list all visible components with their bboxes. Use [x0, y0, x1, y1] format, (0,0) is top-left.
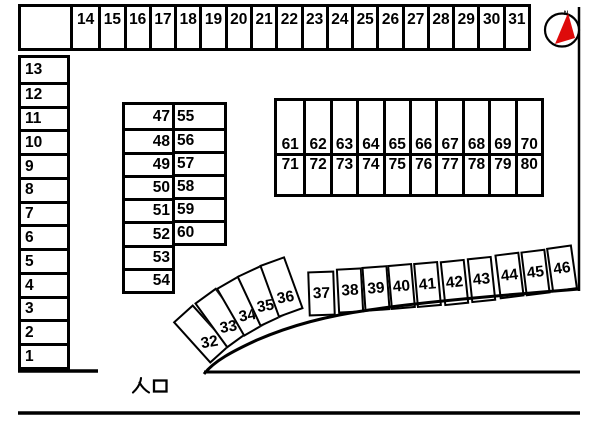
- space-number: 9: [25, 159, 34, 175]
- space-number: 80: [521, 157, 538, 173]
- space-number: 8: [25, 182, 34, 198]
- parking-space-72: 72: [303, 153, 329, 194]
- space-number: 73: [336, 157, 353, 173]
- parking-space-61: 61: [277, 101, 303, 153]
- parking-space-4: 4: [21, 272, 67, 296]
- space-number: 50: [153, 180, 170, 196]
- compass-north-label: N: [564, 11, 568, 17]
- parking-space-50: 50: [125, 175, 172, 198]
- space-number: 59: [177, 202, 194, 218]
- entrance-glyph-iru: [133, 378, 149, 393]
- parking-space-7: 7: [21, 201, 67, 225]
- parking-space-75: 75: [383, 153, 409, 194]
- parking-space-38: 38: [336, 267, 364, 313]
- parking-space-3: 3: [21, 296, 67, 320]
- parking-space-46: 46: [546, 244, 578, 292]
- space-number: 65: [389, 137, 406, 153]
- parking-space-57: 57: [175, 151, 224, 174]
- space-number: 31: [508, 12, 525, 28]
- space-number: 76: [415, 157, 432, 173]
- space-number: 77: [441, 157, 458, 173]
- space-number: 75: [389, 157, 406, 173]
- space-number: 17: [154, 12, 171, 28]
- space-number: 79: [494, 157, 511, 173]
- parking-space-66: 66: [409, 101, 435, 153]
- space-number: 44: [500, 267, 519, 284]
- parking-space-25: 25: [351, 7, 376, 48]
- space-number: 5: [25, 254, 34, 270]
- parking-space-48: 48: [125, 128, 172, 151]
- entrance-label: [133, 378, 167, 393]
- space-number: 13: [25, 62, 42, 78]
- parking-space-68: 68: [462, 101, 488, 153]
- parking-space-31: 31: [503, 7, 528, 48]
- parking-space-60: 60: [175, 220, 224, 243]
- parking-space-47: 47: [125, 105, 172, 128]
- parking-space-13: 13: [21, 58, 67, 82]
- space-number: 45: [526, 264, 545, 281]
- space-number: 62: [309, 137, 326, 153]
- parking-space-8: 8: [21, 177, 67, 201]
- parking-space-79: 79: [488, 153, 514, 194]
- parking-space-12: 12: [21, 82, 67, 106]
- top-row-spaces: 141516171819202122232425262728293031: [70, 4, 531, 51]
- space-number: 74: [362, 157, 379, 173]
- space-number: 6: [25, 230, 34, 246]
- parking-space-44: 44: [494, 252, 524, 300]
- parking-space-42: 42: [440, 259, 470, 306]
- parking-space-24: 24: [326, 7, 351, 48]
- space-number: 38: [341, 282, 359, 298]
- space-number: 11: [25, 111, 41, 127]
- space-number: 41: [418, 276, 437, 293]
- parking-lot-map: 141516171819202122232425262728293031 131…: [0, 0, 604, 421]
- parking-space-63: 63: [330, 101, 356, 153]
- left-column-spaces: 13121110987654321: [18, 55, 70, 370]
- space-number: 15: [104, 12, 121, 28]
- space-number: 20: [230, 12, 247, 28]
- space-number: 63: [336, 137, 353, 153]
- space-number: 27: [407, 12, 424, 28]
- space-number: 61: [282, 137, 299, 153]
- parking-space-54: 54: [125, 268, 172, 291]
- parking-space-77: 77: [435, 153, 461, 194]
- parking-space-37: 37: [307, 271, 336, 317]
- parking-space-5: 5: [21, 248, 67, 272]
- space-number: 10: [25, 135, 42, 151]
- space-number: 51: [153, 203, 170, 219]
- map-lines-overlay: N: [0, 0, 604, 421]
- space-number: 19: [205, 12, 222, 28]
- space-number: 25: [357, 12, 374, 28]
- parking-space-30: 30: [477, 7, 502, 48]
- space-number: 24: [331, 12, 348, 28]
- space-number: 26: [382, 12, 399, 28]
- space-number: 21: [255, 12, 272, 28]
- space-number: 42: [445, 274, 464, 291]
- parking-space-18: 18: [174, 7, 199, 48]
- space-number: 32: [199, 333, 219, 351]
- parking-space-71: 71: [277, 153, 303, 194]
- space-number: 72: [309, 157, 326, 173]
- space-number: 22: [281, 12, 298, 28]
- right-block-spaces: 6162636465666768697071727374757677787980: [274, 98, 544, 197]
- space-number: 48: [153, 134, 170, 150]
- space-number: 52: [153, 227, 170, 243]
- parking-space-49: 49: [125, 152, 172, 175]
- parking-space-65: 65: [383, 101, 409, 153]
- parking-space-23: 23: [301, 7, 326, 48]
- space-number: 4: [25, 278, 34, 294]
- space-number: 12: [25, 87, 42, 103]
- parking-space-21: 21: [250, 7, 275, 48]
- space-number: 49: [153, 157, 170, 173]
- space-number: 23: [306, 12, 323, 28]
- parking-space-58: 58: [175, 174, 224, 197]
- parking-space-67: 67: [435, 101, 461, 153]
- space-number: 67: [441, 137, 458, 153]
- parking-space-73: 73: [330, 153, 356, 194]
- parking-space-39: 39: [361, 265, 390, 312]
- parking-space-41: 41: [413, 261, 442, 308]
- parking-space-20: 20: [225, 7, 250, 48]
- space-number: 1: [25, 349, 34, 365]
- parking-space-29: 29: [452, 7, 477, 48]
- parking-space-2: 2: [21, 319, 67, 343]
- space-number: 2: [25, 325, 34, 341]
- space-number: 18: [180, 12, 197, 28]
- space-number: 64: [362, 137, 379, 153]
- parking-space-74: 74: [356, 153, 382, 194]
- space-number: 43: [472, 271, 491, 288]
- space-number: 54: [153, 273, 170, 289]
- parking-space-59: 59: [175, 197, 224, 220]
- space-number: 70: [521, 137, 538, 153]
- space-number: 29: [458, 12, 475, 28]
- space-number: 56: [177, 133, 194, 149]
- compass-needle: [555, 13, 575, 44]
- space-number: 66: [415, 137, 432, 153]
- parking-space-9: 9: [21, 153, 67, 177]
- parking-space-14: 14: [73, 7, 98, 48]
- space-number: 46: [552, 260, 571, 278]
- parking-space-40: 40: [387, 263, 416, 310]
- parking-space-80: 80: [515, 153, 541, 194]
- parking-space-11: 11: [21, 106, 67, 130]
- parking-space-78: 78: [462, 153, 488, 194]
- space-number: 3: [25, 301, 34, 317]
- space-number: 16: [129, 12, 146, 28]
- parking-space-10: 10: [21, 129, 67, 153]
- space-number: 68: [468, 137, 485, 153]
- entrance-glyph-kuchi: [154, 381, 167, 392]
- parking-space-62: 62: [303, 101, 329, 153]
- parking-space-70: 70: [515, 101, 541, 153]
- middle-block-left-spaces: 4748495051525354: [122, 102, 175, 294]
- parking-space-22: 22: [275, 7, 300, 48]
- parking-space-26: 26: [376, 7, 401, 48]
- space-number: 57: [177, 156, 194, 172]
- space-number: 14: [77, 12, 94, 28]
- space-number: 47: [153, 109, 170, 125]
- parking-space-52: 52: [125, 221, 172, 244]
- space-number: 69: [494, 137, 511, 153]
- space-number: 39: [367, 280, 385, 297]
- parking-space-53: 53: [125, 245, 172, 268]
- parking-space-28: 28: [427, 7, 452, 48]
- parking-space-64: 64: [356, 101, 382, 153]
- parking-space-69: 69: [488, 101, 514, 153]
- space-number: 60: [177, 225, 194, 241]
- parking-space-76: 76: [409, 153, 435, 194]
- parking-space-1: 1: [21, 343, 67, 367]
- space-number: 58: [177, 179, 194, 195]
- space-number: 30: [483, 12, 500, 28]
- parking-space-19: 19: [199, 7, 224, 48]
- space-number: 78: [468, 157, 485, 173]
- compass-icon: N: [545, 11, 579, 47]
- space-number: 37: [313, 285, 331, 301]
- space-number: 53: [153, 250, 170, 266]
- space-number: 28: [432, 12, 449, 28]
- parking-space-51: 51: [125, 198, 172, 221]
- space-number: 36: [276, 288, 296, 306]
- parking-space-43: 43: [467, 256, 497, 303]
- parking-space-16: 16: [124, 7, 149, 48]
- parking-space-17: 17: [149, 7, 174, 48]
- parking-space-27: 27: [402, 7, 427, 48]
- space-number: 55: [177, 109, 194, 125]
- middle-block-right-spaces: 555657585960: [172, 102, 227, 246]
- space-number: 7: [25, 206, 34, 222]
- parking-space-55: 55: [175, 105, 224, 128]
- parking-space-56: 56: [175, 128, 224, 151]
- space-number: 71: [282, 157, 299, 173]
- parking-space-15: 15: [98, 7, 123, 48]
- parking-space-6: 6: [21, 224, 67, 248]
- corner-empty-cell: [18, 4, 73, 51]
- space-number: 40: [392, 278, 411, 295]
